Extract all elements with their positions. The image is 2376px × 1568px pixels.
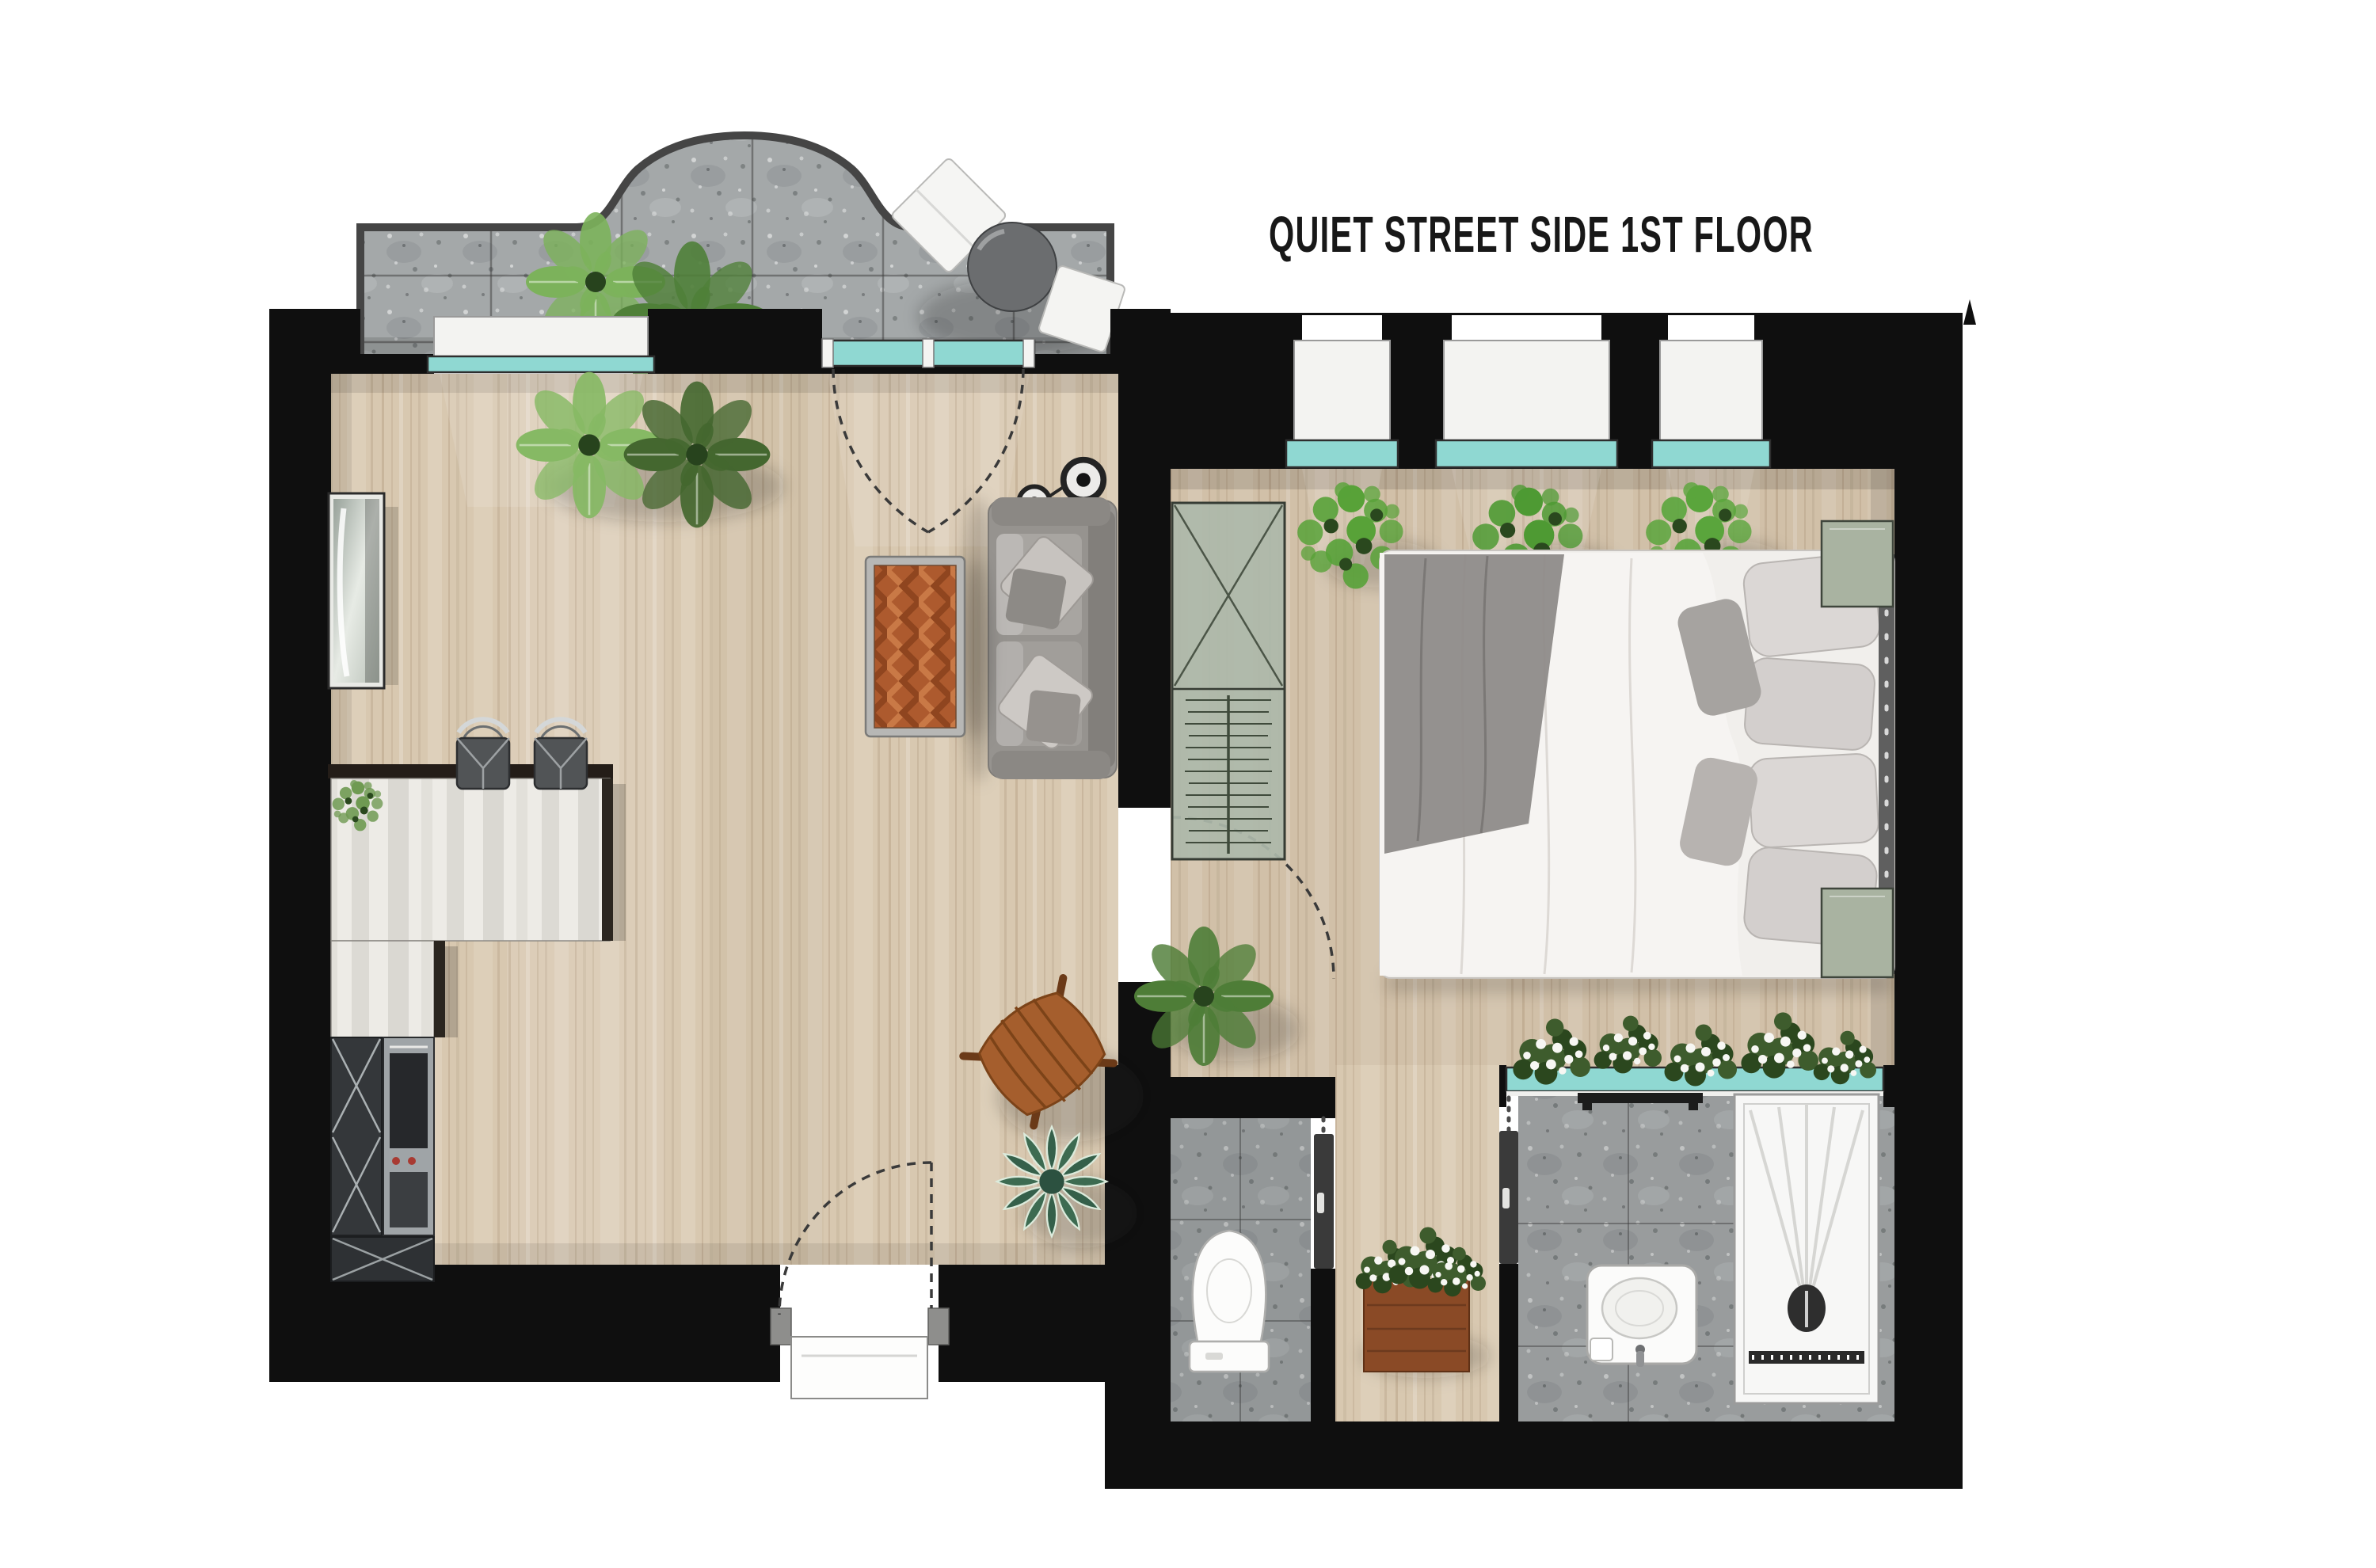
outer-window-gaps bbox=[1302, 315, 1754, 341]
soap-dish bbox=[1590, 1338, 1613, 1361]
monstera-plant bbox=[1134, 927, 1274, 1066]
window-outer-gap bbox=[1302, 315, 1382, 341]
round-table bbox=[968, 223, 1057, 311]
wall-segment bbox=[269, 309, 331, 1382]
flush-button bbox=[1205, 1353, 1223, 1360]
wall-segment bbox=[1118, 374, 1171, 808]
monstera-plant bbox=[624, 382, 771, 528]
wardrobe bbox=[1172, 503, 1285, 859]
window-sill bbox=[1444, 341, 1609, 440]
oven bbox=[383, 1037, 434, 1235]
wall-segment bbox=[1883, 1065, 1894, 1107]
sofa-pillow bbox=[1005, 568, 1068, 630]
wall-segment bbox=[1110, 309, 1171, 374]
tall-glass-cabinet bbox=[329, 493, 398, 688]
window-sill bbox=[1660, 341, 1762, 440]
counter-return bbox=[331, 941, 434, 1037]
appliance-column bbox=[331, 1037, 434, 1281]
floor-plan: QUIET STREET SIDE 1ST FLOOR bbox=[0, 0, 2376, 1568]
wall-segment bbox=[1894, 313, 1963, 1489]
window-glass bbox=[428, 356, 654, 372]
plan-title: QUIET STREET SIDE 1ST FLOOR bbox=[1269, 207, 1814, 264]
wall-segment bbox=[1171, 1077, 1335, 1118]
sofa-back bbox=[1088, 510, 1115, 768]
sofa-armrest bbox=[992, 497, 1110, 526]
wall-segment bbox=[1311, 1269, 1335, 1421]
wall-segment bbox=[1105, 1421, 1963, 1489]
window-glass bbox=[1652, 440, 1770, 467]
toilet-tank bbox=[1190, 1342, 1269, 1372]
wall-segment bbox=[269, 309, 360, 374]
window-outer-gap bbox=[1452, 315, 1601, 341]
entry-threshold bbox=[791, 1337, 927, 1399]
double-bed bbox=[1380, 550, 1894, 978]
pocket-door-handle bbox=[1317, 1193, 1324, 1213]
base-cabinet bbox=[331, 1237, 434, 1281]
wall-segment bbox=[360, 354, 434, 374]
window-glass bbox=[1436, 440, 1617, 467]
wall-segment bbox=[1499, 1065, 1506, 1107]
pillow bbox=[1743, 657, 1875, 752]
shower-tray bbox=[1734, 1094, 1879, 1403]
sink-vanity bbox=[1587, 1265, 1696, 1367]
toilet-bowl bbox=[1193, 1231, 1266, 1342]
window-outer-gap bbox=[1668, 315, 1754, 341]
toilet bbox=[1190, 1231, 1269, 1372]
nightstand bbox=[1822, 521, 1893, 607]
window-sill bbox=[434, 317, 648, 356]
wall-segment bbox=[648, 309, 822, 374]
wall-segment bbox=[1034, 354, 1110, 374]
pillow bbox=[1748, 753, 1879, 848]
window-sill bbox=[1294, 341, 1390, 440]
sofa-armrest bbox=[992, 751, 1110, 779]
window-glass bbox=[1286, 440, 1398, 467]
nightstand bbox=[1822, 889, 1893, 977]
sofa-pillow bbox=[1026, 690, 1081, 745]
wall-segment bbox=[269, 1265, 780, 1382]
floor-plan-page: QUIET STREET SIDE 1ST FLOOR bbox=[0, 0, 2376, 1568]
wall-segment bbox=[1499, 1264, 1518, 1421]
pocket-door-handle bbox=[1502, 1188, 1510, 1208]
sofa bbox=[988, 497, 1117, 779]
wall-lamp-icon bbox=[1064, 460, 1104, 500]
entry-jamb bbox=[928, 1308, 949, 1345]
coffee-table bbox=[866, 557, 965, 736]
sink-basin bbox=[1602, 1278, 1677, 1338]
table-shadow bbox=[961, 558, 990, 740]
entry-jamb bbox=[771, 1308, 791, 1345]
wc-pocket-door bbox=[1314, 1118, 1334, 1269]
